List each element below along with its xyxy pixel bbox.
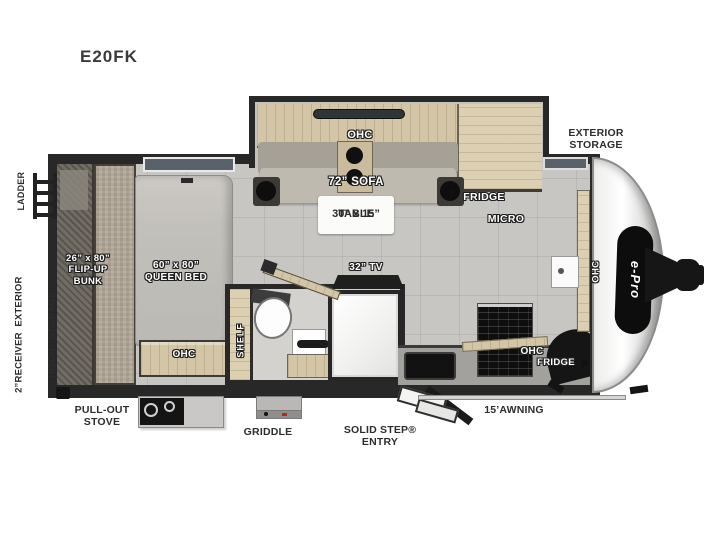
vanity-cabinet [287, 354, 329, 378]
galley-window [543, 157, 588, 170]
cupholder-icon [346, 147, 363, 164]
awning-bracket-icon [630, 385, 649, 394]
griddle-knob-icon [264, 412, 268, 416]
bunk-word2: BUNK [48, 276, 128, 287]
faucet-icon [297, 340, 329, 348]
page-title: E20FK [80, 47, 138, 67]
awning-rail [418, 395, 626, 400]
bed-ohc-label: OHC [160, 349, 208, 361]
exterior-storage-line1: EXTERIOR [556, 127, 636, 139]
queen-word: QUEEN BED [135, 272, 217, 284]
hitch-storage-line1: 2”RECEIVER EXTERIOR [14, 254, 25, 416]
bunk-size: 26” x 80” [48, 253, 128, 264]
burner-icon [144, 403, 158, 417]
stove-line2: STOVE [62, 416, 142, 428]
bed-headboard-mark [181, 178, 193, 183]
fridge-upper-label: FRIDGE [456, 191, 512, 204]
front-faucet-icon [558, 268, 564, 274]
fridge-lower-label: FRIDGE [530, 357, 582, 368]
tv-icon [332, 275, 404, 289]
step-line2: ENTRY [340, 436, 420, 448]
brand-logo: e-Pro [627, 230, 643, 330]
bunk-word1: FLIP-UP [48, 264, 128, 275]
bunk-label: 26” x 80” FLIP-UP BUNK [48, 253, 128, 287]
exterior-storage-line2: STORAGE [556, 139, 636, 151]
solid-step-label: SOLID STEP® ENTRY [340, 424, 420, 448]
shelf-label: SHELF [236, 310, 247, 370]
exterior-storage-label: EXTERIOR STORAGE [556, 127, 636, 151]
ladder-label: LADDER [16, 161, 26, 221]
speaker-icon [256, 181, 276, 201]
micro-label: MICRO [482, 213, 530, 226]
tv-label: 32” TV [336, 262, 396, 274]
step-line1: SOLID STEP® [340, 424, 420, 436]
griddle-indicator-icon [282, 413, 287, 416]
slide-ohc-label: OHC [335, 129, 385, 142]
stove-line1: PULL-OUT [62, 404, 142, 416]
rear-storage-door [60, 170, 88, 210]
slide-pantry-cabinet [457, 104, 542, 192]
queen-bed-label: 60” x 80” QUEEN BED [135, 260, 217, 284]
burner-icon [164, 401, 175, 412]
table-word: TABLE [338, 208, 374, 222]
queen-size: 60” x 80” [135, 260, 217, 272]
shower [328, 290, 402, 381]
table-label: 30” x 15” TABLE [318, 196, 394, 234]
awning-label: 15’AWNING [478, 404, 550, 416]
fridge-arrow-icon [582, 359, 589, 367]
pull-out-stove-label: PULL-OUT STOVE [62, 404, 142, 428]
ladder-icon [33, 173, 57, 219]
griddle-label: GRIDDLE [232, 426, 304, 438]
floorplan-canvas: E20FK e-Pro [0, 0, 720, 540]
slide-vent [313, 109, 405, 119]
hitch-ball-mount [697, 265, 704, 285]
sofa-label: 72” SOFA [318, 176, 394, 190]
front-ohc-label: OHC [590, 247, 601, 297]
front-sink [551, 256, 579, 288]
griddle-base [256, 410, 302, 419]
bedroom-window [143, 157, 235, 172]
kitchen-sink-icon [404, 352, 456, 380]
